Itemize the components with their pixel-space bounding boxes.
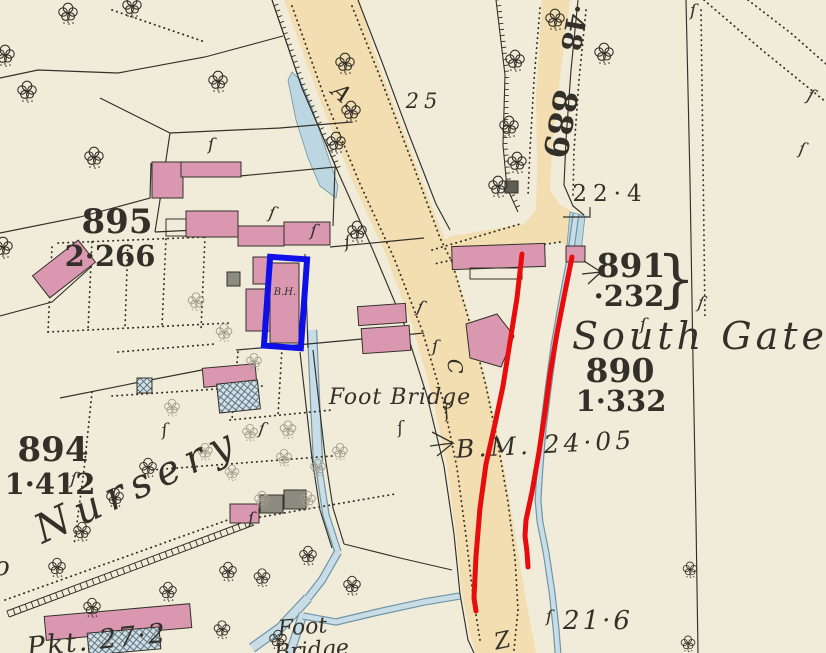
tree-dot <box>688 651 689 652</box>
tree-dot <box>493 195 495 197</box>
label-southgate: South Gate R <box>572 314 826 358</box>
building <box>238 226 284 246</box>
label-level-216: 21·6 <box>562 606 633 636</box>
label-bh-house: B.H. <box>273 287 296 298</box>
tree-dot <box>172 599 173 600</box>
hedge-tick <box>502 47 506 48</box>
tree-dot <box>336 459 337 460</box>
tree-dot <box>318 475 319 476</box>
tree-dot <box>232 480 233 481</box>
tree-dot <box>265 507 266 508</box>
tree-dot <box>312 563 313 564</box>
tree-dot <box>345 73 347 75</box>
tree-dot <box>331 151 333 153</box>
tree-dot <box>218 637 219 638</box>
tree-dot <box>61 575 62 576</box>
label-edge-partial: o <box>0 552 10 582</box>
tree-dot <box>258 585 259 586</box>
label-parcel-894: 894 <box>18 430 89 470</box>
tree-dot <box>200 309 201 310</box>
tree-dot <box>72 22 74 24</box>
hedge-tick <box>505 71 509 72</box>
map-viewport[interactable]: ſſſſſſſſſſſſſſſſſſ8952·2668941·412889·48… <box>0 0 826 653</box>
tree-dot <box>550 28 552 30</box>
tree-dot <box>3 257 5 259</box>
tree-dot <box>250 369 251 370</box>
label-letter-c: C <box>442 358 467 375</box>
building <box>230 504 259 523</box>
tree-dot <box>349 72 351 74</box>
tree-dot <box>361 240 363 242</box>
tree-dot <box>693 576 694 577</box>
tree-dot <box>228 580 229 581</box>
building <box>361 325 411 353</box>
tree-dot <box>235 479 236 480</box>
tree-dot <box>94 167 96 169</box>
tree-dot <box>304 507 305 508</box>
tree-dot <box>168 600 169 601</box>
label-area-890: 1·332 <box>576 384 667 418</box>
tree-dot <box>686 576 687 577</box>
building <box>227 272 240 286</box>
tree-dot <box>284 437 285 438</box>
tree-dot <box>684 650 685 651</box>
tree-dot <box>355 120 357 122</box>
hedge-tick <box>498 17 502 18</box>
tree-dot <box>510 69 512 71</box>
tree-dot <box>690 577 691 578</box>
tree-dot <box>521 171 523 173</box>
tree-dot <box>321 475 322 476</box>
tree-dot <box>348 593 349 594</box>
tree-dot <box>168 415 169 416</box>
tree-dot <box>340 459 341 460</box>
tree-dot <box>311 507 312 508</box>
tree-dot <box>340 151 342 153</box>
tree-dot <box>604 63 606 65</box>
tree-dot <box>284 465 285 466</box>
tree-dot <box>246 440 247 441</box>
tree-dot <box>88 615 89 616</box>
tree-dot <box>82 540 83 541</box>
tree-dot <box>92 616 93 617</box>
hedge-tick <box>502 53 506 54</box>
tree-dot <box>509 136 511 138</box>
tree-dot <box>257 369 258 370</box>
tree-dot <box>63 22 65 24</box>
building <box>260 495 283 513</box>
tree-dot <box>218 91 220 93</box>
building <box>152 162 183 198</box>
tree-dot <box>136 15 138 17</box>
tree-dot <box>164 599 165 600</box>
label-level-25: 25 <box>405 89 443 113</box>
label-area-895: 2·266 <box>65 239 156 273</box>
tree-dot <box>27 101 29 103</box>
tree-dot <box>228 479 229 480</box>
tree-dot <box>504 135 506 137</box>
tree-dot <box>262 507 263 508</box>
tree-dot <box>253 440 254 441</box>
tree-dot <box>132 16 134 18</box>
tree-dot <box>352 594 353 595</box>
tree-dot <box>357 241 359 243</box>
tree-dot <box>512 171 514 173</box>
building <box>186 211 238 237</box>
tree-dot <box>254 369 255 370</box>
tree-dot <box>280 465 281 466</box>
tree-dot <box>224 579 225 580</box>
label-brace-891: } <box>656 242 695 315</box>
building <box>566 246 585 262</box>
tree-dot <box>222 638 223 639</box>
hedge-tick <box>501 41 505 42</box>
tree-dot <box>220 340 221 341</box>
tree-dot <box>599 62 601 64</box>
tree-dot <box>7 256 9 258</box>
tree-dot <box>226 637 227 638</box>
tree-dot <box>232 579 233 580</box>
hedge-tick <box>504 65 508 66</box>
tree-dot <box>288 438 289 439</box>
tree-dot <box>262 586 263 587</box>
hedge-tick <box>497 11 501 12</box>
tree-dot <box>175 415 176 416</box>
building <box>452 243 546 269</box>
os-map-canvas: ſſſſſſſſſſſſſſſſſſ8952·2668941·412889·48… <box>0 0 826 653</box>
tree-dot <box>498 196 500 198</box>
tree-dot <box>304 563 305 564</box>
hedge-tick <box>500 35 504 36</box>
hedge-tick <box>500 29 504 30</box>
building <box>357 303 406 325</box>
hedge-tick <box>497 5 501 6</box>
tree-dot <box>196 310 197 311</box>
glasshouse <box>217 380 261 413</box>
tree-dot <box>351 121 353 123</box>
tree-dot <box>222 90 224 92</box>
label-area-232: ·232 <box>594 279 665 313</box>
tree-dot <box>9 64 11 66</box>
tree-dot <box>691 650 692 651</box>
tree-dot <box>356 593 357 594</box>
tree-dot <box>228 340 229 341</box>
tree-dot <box>5 65 7 67</box>
tree-dot <box>555 29 557 31</box>
tree-dot <box>517 172 519 174</box>
tree-dot <box>78 539 79 540</box>
building <box>181 162 241 177</box>
tree-dot <box>57 576 58 577</box>
tree-dot <box>192 309 193 310</box>
tree-dot <box>96 615 97 616</box>
building <box>284 222 330 245</box>
label-parcel-895: 895 <box>82 202 153 242</box>
tree-dot <box>258 507 259 508</box>
building <box>270 263 299 343</box>
building <box>284 490 306 509</box>
tree-dot <box>519 69 521 71</box>
label-footbridge-1: Foot Bridge <box>328 385 471 410</box>
tree-dot <box>224 341 225 342</box>
tree-dot <box>86 539 87 540</box>
tree-dot <box>513 135 515 137</box>
tree-dot <box>0 64 2 66</box>
tree-dot <box>98 166 100 168</box>
tree-dot <box>22 100 24 102</box>
tree-dot <box>314 475 315 476</box>
tree-dot <box>127 15 129 17</box>
tree-dot <box>213 90 215 92</box>
tree-dot <box>68 23 70 25</box>
tree-dot <box>172 415 173 416</box>
tree-dot <box>250 440 251 441</box>
tree-dot <box>292 437 293 438</box>
tree-dot <box>346 120 348 122</box>
tree-dot <box>53 575 54 576</box>
tree-dot <box>287 465 288 466</box>
tree-dot <box>336 152 338 154</box>
tree-dot <box>608 62 610 64</box>
tree-dot <box>352 240 354 242</box>
tree-dot <box>266 585 267 586</box>
tree-dot <box>308 564 309 565</box>
tree-dot <box>31 100 33 102</box>
tree-dot <box>502 195 504 197</box>
tree-dot <box>89 166 91 168</box>
label-level-224: 22·4 <box>572 181 647 207</box>
tree-dot <box>515 70 517 72</box>
tree-dot <box>340 72 342 74</box>
glasshouse <box>137 378 152 393</box>
tree-dot <box>308 507 309 508</box>
hedge-tick <box>499 23 503 24</box>
tree-dot <box>343 459 344 460</box>
